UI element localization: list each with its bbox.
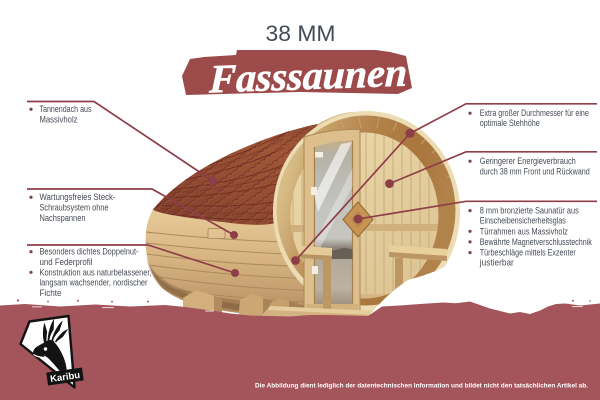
svg-text:langsam wachsender, nordischer: langsam wachsender, nordischer	[40, 278, 148, 288]
svg-text:Die Abbildung dient lediglich: Die Abbildung dient lediglich der datent…	[255, 383, 588, 390]
svg-text:Bewährte Magnetverschlusstechn: Bewährte Magnetverschlusstechnik	[480, 237, 592, 247]
svg-text:38 MM: 38 MM	[266, 21, 336, 46]
svg-text:Türbeschläge mittels Exzenter: Türbeschläge mittels Exzenter	[480, 248, 576, 258]
svg-text:Fichte: Fichte	[40, 288, 62, 298]
svg-text:Geringerer Energieverbrauch: Geringerer Energieverbrauch	[480, 156, 576, 166]
svg-text:Einscheibensicherheitsglas: Einscheibensicherheitsglas	[480, 216, 566, 226]
svg-text:Massivholz: Massivholz	[40, 115, 78, 125]
svg-text:Wartungsfreies Steck-: Wartungsfreies Steck-	[40, 192, 116, 202]
svg-text:8 mm bronzierte Saunatür aus: 8 mm bronzierte Saunatür aus	[480, 206, 579, 216]
svg-text:Tannendach aus: Tannendach aus	[40, 104, 92, 114]
svg-text:und Federprofil: und Federprofil	[40, 257, 93, 267]
svg-text:Besonders dichtes Doppelnut-: Besonders dichtes Doppelnut-	[40, 247, 139, 257]
svg-text:Schraubsystem ohne: Schraubsystem ohne	[40, 203, 109, 213]
svg-text:justierbar: justierbar	[479, 258, 514, 268]
svg-text:Türrahmen aus Massivholz: Türrahmen aus Massivholz	[480, 226, 568, 236]
svg-text:durch 38 mm Front und Rückwand: durch 38 mm Front und Rückwand	[480, 166, 590, 176]
svg-text:Fasssaunen: Fasssaunen	[208, 50, 408, 102]
svg-text:Konstruktion aus naturbelassen: Konstruktion aus naturbelassener,	[40, 267, 152, 277]
svg-text:Nachspannen: Nachspannen	[40, 213, 86, 223]
svg-text:optimale Stehhöhe: optimale Stehhöhe	[480, 118, 540, 128]
svg-text:Extra großer Durchmesser für e: Extra großer Durchmesser für eine	[480, 108, 589, 118]
